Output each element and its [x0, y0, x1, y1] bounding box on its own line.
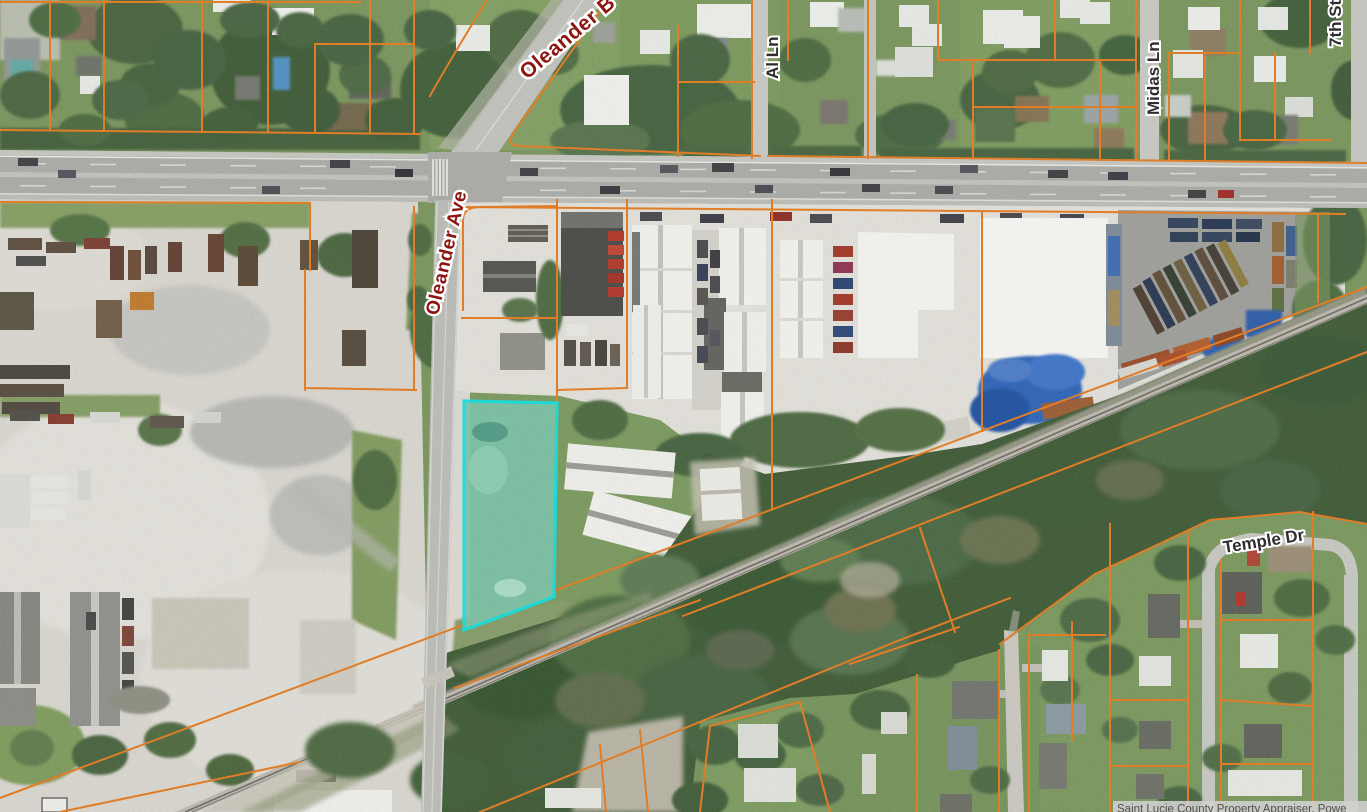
svg-text:Midas Ln: Midas Ln: [1144, 41, 1163, 115]
svg-text:Al Ln: Al Ln: [763, 37, 782, 80]
svg-text:7th St: 7th St: [1326, 0, 1345, 47]
svg-text:Saint Lucie County Property Ap: Saint Lucie County Property Appraiser, P…: [1117, 804, 1347, 812]
